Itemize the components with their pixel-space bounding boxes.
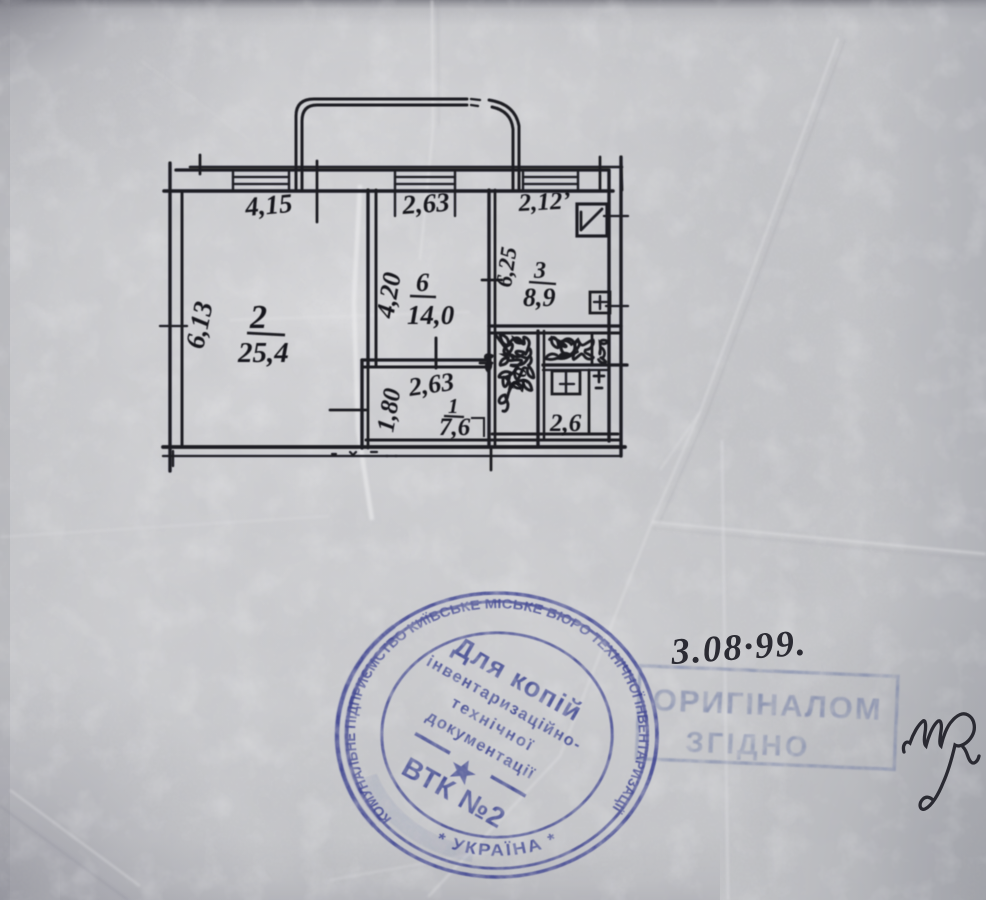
svg-text:2,0: 2,0 [507, 365, 532, 394]
svg-text:ЗГІДНО: ЗГІДНО [685, 727, 811, 764]
svg-text:4,15: 4,15 [243, 188, 294, 222]
svg-text:8,9: 8,9 [523, 283, 556, 312]
svg-text:6: 6 [416, 268, 429, 297]
svg-text:2: 2 [249, 299, 267, 336]
svg-text:25,4: 25,4 [237, 337, 289, 369]
svg-text:7,6: 7,6 [439, 414, 471, 441]
svg-text:2,12’: 2,12’ [517, 187, 571, 217]
svg-text:3: 3 [533, 258, 546, 284]
svg-text:2,6: 2,6 [549, 410, 582, 437]
svg-text:14,0: 14,0 [407, 300, 455, 330]
svg-text:2,63: 2,63 [400, 187, 450, 220]
